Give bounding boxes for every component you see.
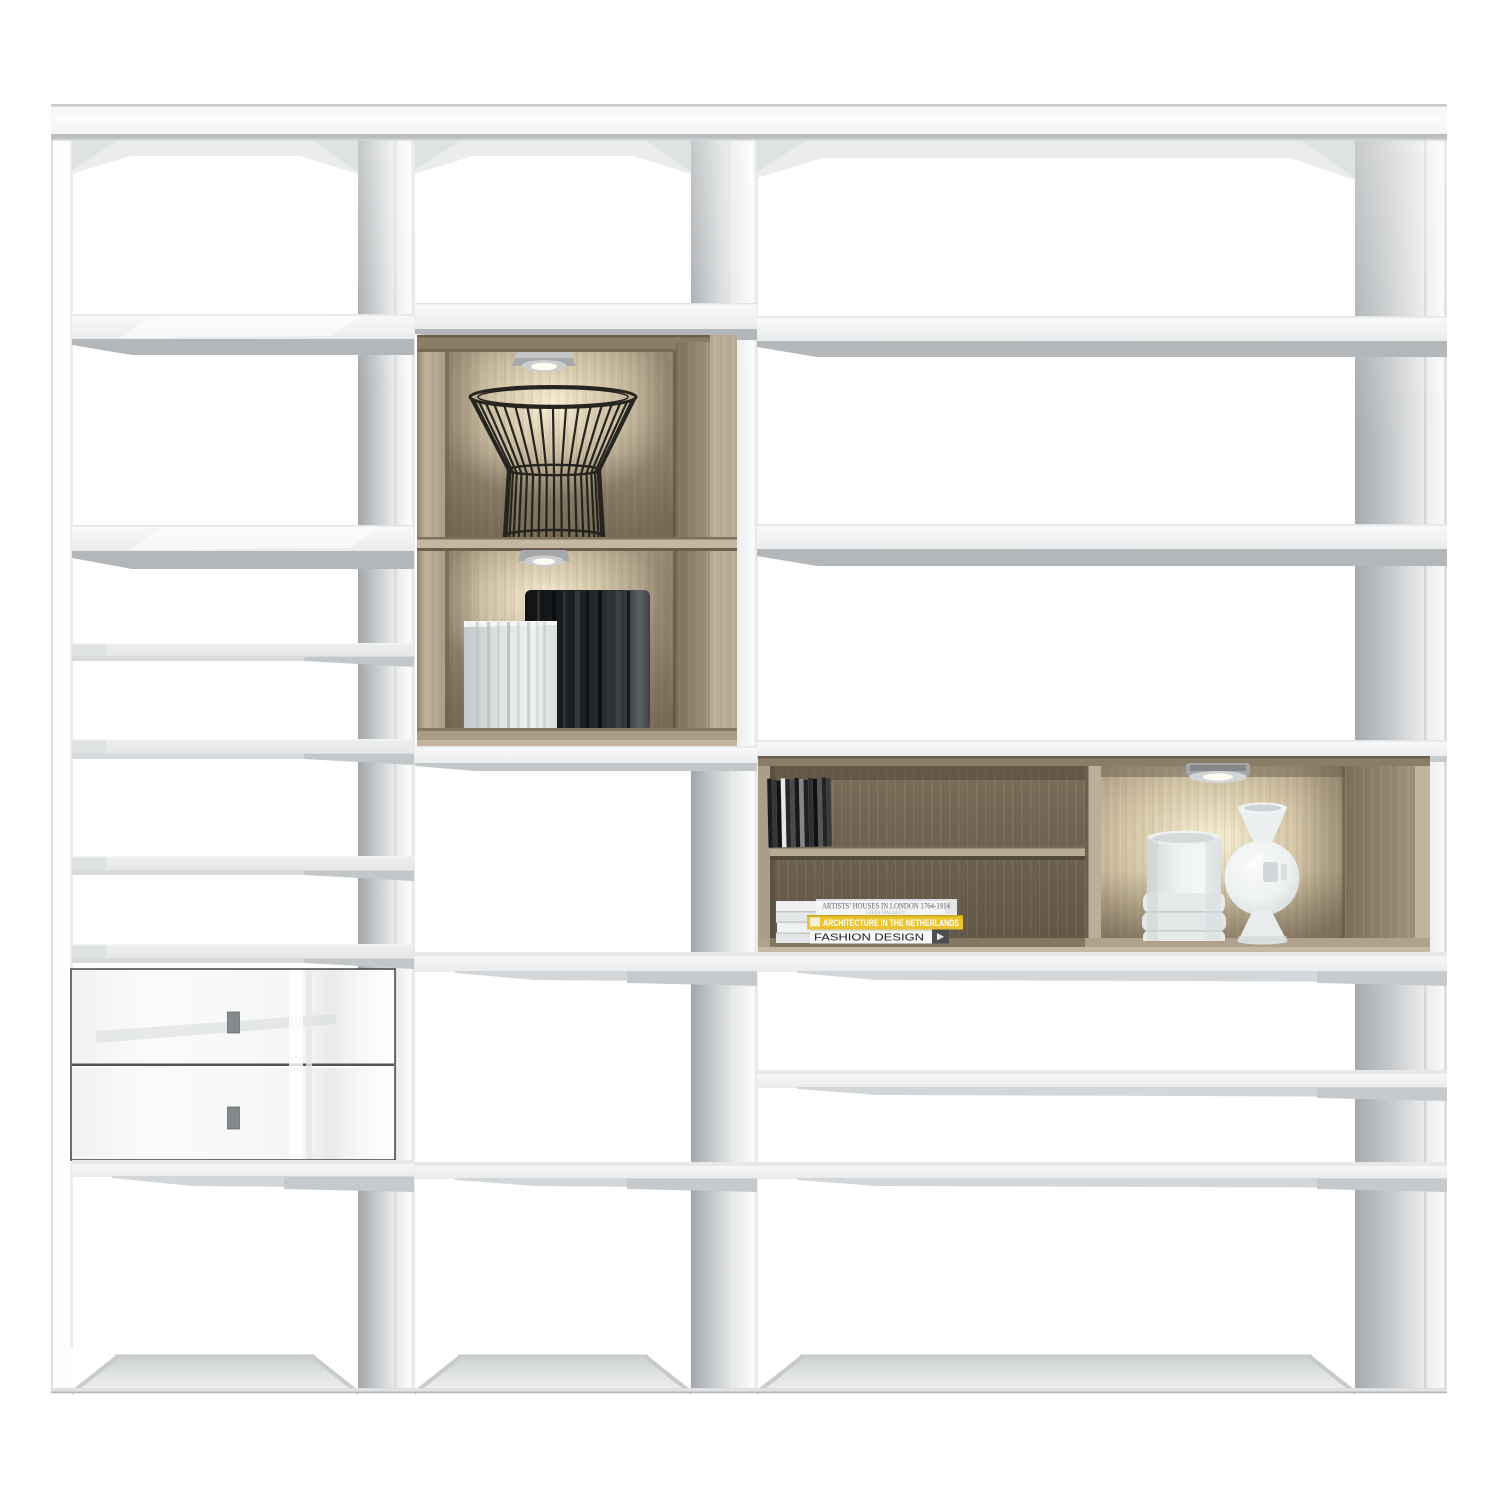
svg-text:ARTISTS’ HOUSES IN LONDON 1764: ARTISTS’ HOUSES IN LONDON 1764-1914 xyxy=(822,902,950,911)
svg-text:FASHION DESIGN: FASHION DESIGN xyxy=(814,933,924,944)
svg-text:ARCHITECTURE IN THE NETHERLAND: ARCHITECTURE IN THE NETHERLANDS xyxy=(823,918,959,928)
